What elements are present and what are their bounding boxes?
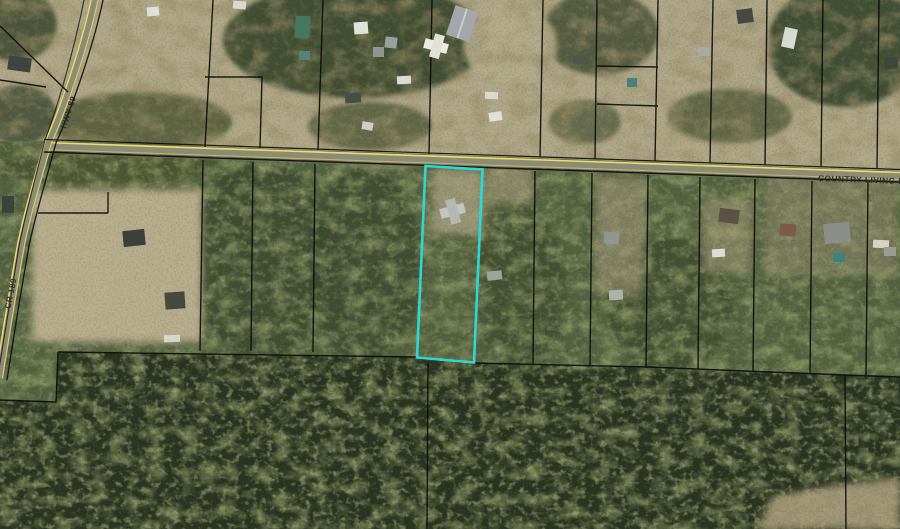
- aerial-map-canvas[interactable]: HWY 89 CR 189 COUNTRY LIVING R: [0, 0, 900, 529]
- grain-overlay: [0, 0, 900, 529]
- aerial-map: HWY 89 CR 189 COUNTRY LIVING R: [0, 0, 900, 529]
